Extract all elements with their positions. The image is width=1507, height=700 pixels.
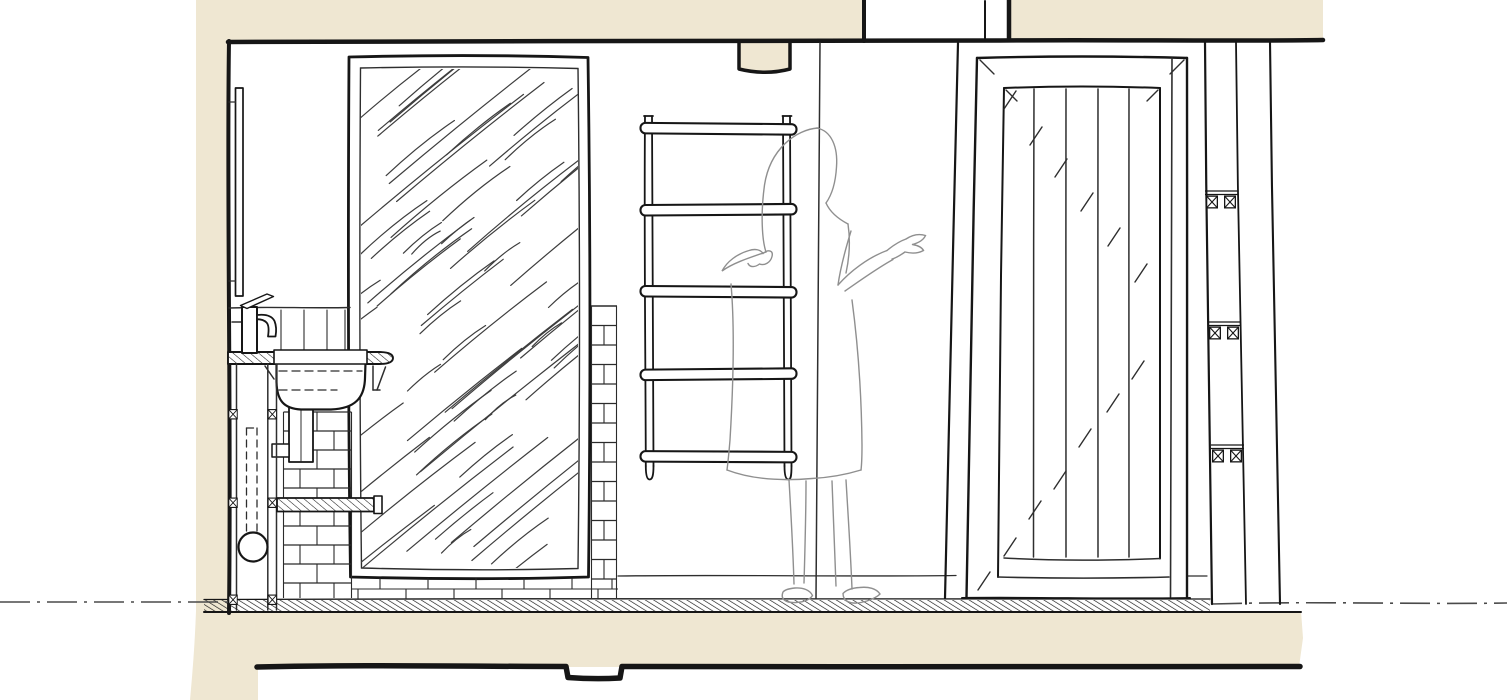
batten-marker: [1231, 450, 1242, 462]
tap-body: [242, 307, 257, 353]
basin-rim: [274, 350, 367, 364]
ceiling-poche-right: [1009, 0, 1323, 39]
batten-marker: [229, 410, 238, 419]
batten-marker: [1207, 196, 1218, 208]
trap-wall-tab: [272, 444, 289, 457]
floor-slab-poche: [229, 611, 1303, 667]
wall-panel-section: [236, 88, 244, 296]
batten-marker: [1210, 327, 1221, 339]
batten-marker: [1225, 196, 1236, 208]
batten-marker: [268, 410, 277, 419]
wall-shelf-hatch: [277, 498, 374, 512]
basin-bowl: [277, 363, 366, 410]
floor-slab-top-line: [204, 612, 1301, 613]
skirting-line: [618, 576, 956, 577]
batten-marker: [229, 498, 238, 507]
left-wall-poche: [196, 0, 229, 613]
ceiling-line: [228, 40, 1323, 42]
batten-marker: [229, 595, 238, 604]
left-wall-line: [228, 41, 229, 613]
batten-marker: [268, 498, 277, 507]
duct-section-circle: [239, 533, 268, 562]
batten-marker: [268, 595, 277, 604]
door-threshold-line: [962, 598, 1190, 599]
batten-marker: [1228, 327, 1239, 339]
batten-marker: [1213, 450, 1224, 462]
elevation-drawing: [0, 0, 1507, 700]
shelf-end-cap: [374, 496, 382, 514]
elevation-sheet: [0, 0, 1507, 700]
floor-screed-hatch: [204, 600, 1210, 612]
